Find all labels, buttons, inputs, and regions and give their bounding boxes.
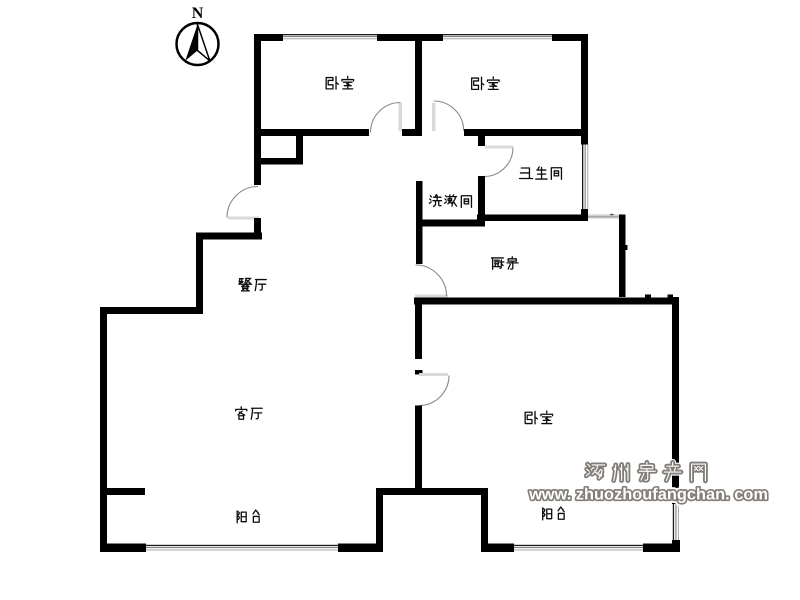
svg-text:N: N	[192, 5, 204, 22]
svg-text:www. zhuozhoufangchan. com: www. zhuozhoufangchan. com	[528, 486, 768, 504]
